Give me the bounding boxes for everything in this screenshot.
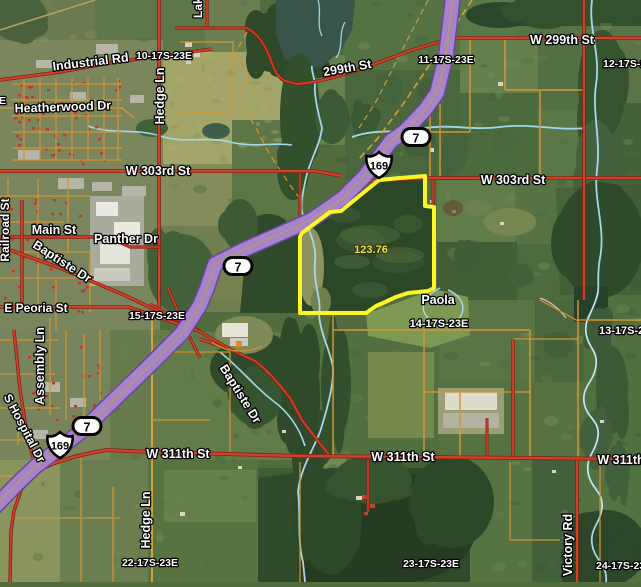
svg-text:14-17S-23E: 14-17S-23E — [410, 318, 469, 330]
svg-text:Hedge Ln: Hedge Ln — [153, 68, 167, 125]
svg-text:11-17S-23E: 11-17S-23E — [418, 54, 473, 66]
svg-text:23-17S-23E: 23-17S-23E — [403, 558, 459, 570]
svg-text:Railroad St: Railroad St — [0, 198, 12, 261]
svg-text:15-17S-23E: 15-17S-23E — [129, 310, 185, 322]
svg-text:Hedge Ln: Hedge Ln — [139, 492, 153, 549]
svg-text:Assembly Ln: Assembly Ln — [33, 327, 47, 405]
svg-text:13-17S-23E: 13-17S-23E — [599, 325, 641, 337]
svg-text:24-17S-23E: 24-17S-23E — [596, 560, 641, 572]
svg-text:Main St: Main St — [32, 223, 77, 237]
svg-text:9-17S-23E: 9-17S-23E — [0, 95, 6, 107]
svg-text:W 311th St: W 311th St — [597, 453, 641, 467]
svg-text:W 303rd St: W 303rd St — [481, 173, 546, 187]
svg-text:W 299th St: W 299th St — [530, 33, 595, 47]
svg-text:169: 169 — [51, 440, 69, 452]
svg-text:7: 7 — [413, 132, 420, 146]
svg-text:E Peoria St: E Peoria St — [4, 301, 67, 315]
svg-text:W 311th St: W 311th St — [146, 447, 210, 461]
svg-text:10-17S-23E: 10-17S-23E — [136, 50, 192, 62]
svg-text:12-17S-23E: 12-17S-23E — [603, 58, 641, 70]
svg-text:W 303rd St: W 303rd St — [126, 164, 191, 178]
svg-text:7: 7 — [84, 421, 91, 435]
svg-text:7: 7 — [235, 261, 242, 275]
svg-text:Lake Ln: Lake Ln — [191, 0, 205, 18]
svg-text:22-17S-23E: 22-17S-23E — [122, 557, 178, 569]
svg-text:169: 169 — [370, 160, 388, 172]
svg-text:Panther Dr: Panther Dr — [94, 232, 158, 246]
svg-text:123.76: 123.76 — [354, 244, 388, 256]
svg-text:W 311th St: W 311th St — [371, 450, 435, 464]
svg-text:Paola: Paola — [421, 293, 455, 307]
svg-text:Victory Rd: Victory Rd — [561, 514, 575, 576]
